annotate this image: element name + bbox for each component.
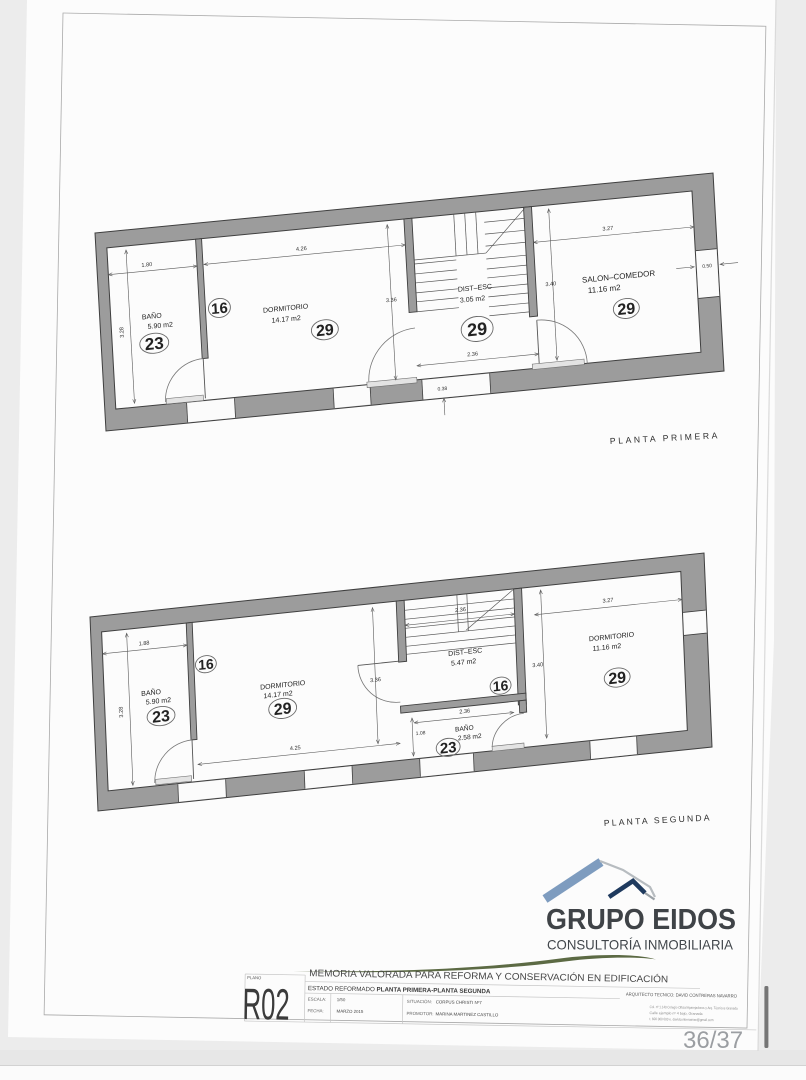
svg-text:3.27: 3.27 — [603, 598, 614, 605]
svg-text:4.26: 4.26 — [296, 246, 307, 253]
svg-text:23: 23 — [152, 708, 170, 727]
svg-text:29: 29 — [617, 300, 636, 319]
svg-text:0.50: 0.50 — [702, 263, 712, 270]
svg-text:3.36: 3.36 — [386, 297, 397, 304]
svg-text:3.27: 3.27 — [602, 226, 613, 233]
svg-text:29: 29 — [608, 669, 626, 688]
svg-text:FECHA:: FECHA: — [308, 1008, 324, 1013]
svg-text:1.88: 1.88 — [139, 640, 150, 647]
svg-text:GRUPO EIDOS: GRUPO EIDOS — [546, 904, 736, 936]
svg-text:29: 29 — [316, 322, 335, 341]
svg-text:0.38: 0.38 — [437, 386, 447, 393]
svg-text:23: 23 — [144, 334, 164, 355]
svg-text:ESCALA:: ESCALA: — [308, 997, 327, 1002]
svg-text:PROMOTOR:: PROMOTOR: — [406, 1011, 433, 1016]
svg-text:1/50: 1/50 — [337, 997, 346, 1002]
svg-text:16: 16 — [211, 300, 229, 319]
svg-text:16: 16 — [493, 677, 509, 695]
svg-text:R02: R02 — [242, 980, 290, 1030]
svg-text:MARZO 2015: MARZO 2015 — [337, 1009, 364, 1014]
svg-text:3.40: 3.40 — [545, 281, 556, 288]
svg-text:2.36: 2.36 — [455, 607, 466, 614]
svg-text:CONSULTORÍA INMOBILIARIA: CONSULTORÍA INMOBILIARIA — [547, 937, 734, 953]
svg-text:16: 16 — [198, 655, 214, 673]
svg-text:1.08: 1.08 — [416, 730, 426, 737]
svg-text:2.36: 2.36 — [459, 708, 470, 715]
svg-text:2.36: 2.36 — [467, 351, 478, 358]
svg-text:3.28: 3.28 — [119, 706, 125, 718]
svg-text:29: 29 — [274, 700, 292, 719]
svg-text:3.28: 3.28 — [119, 327, 126, 338]
svg-text:4.25: 4.25 — [290, 745, 301, 752]
svg-text:3.40: 3.40 — [532, 662, 543, 669]
svg-text:3.36: 3.36 — [370, 677, 381, 684]
svg-text:29: 29 — [467, 318, 488, 340]
svg-text:36/37: 36/37 — [683, 1027, 743, 1054]
svg-text:SITUACIÓN:: SITUACIÓN: — [407, 999, 432, 1004]
svg-text:1.80: 1.80 — [141, 262, 152, 269]
svg-text:CORPUS CHRISTI Nº7: CORPUS CHRISTI Nº7 — [436, 999, 483, 1005]
svg-text:23: 23 — [440, 739, 457, 758]
